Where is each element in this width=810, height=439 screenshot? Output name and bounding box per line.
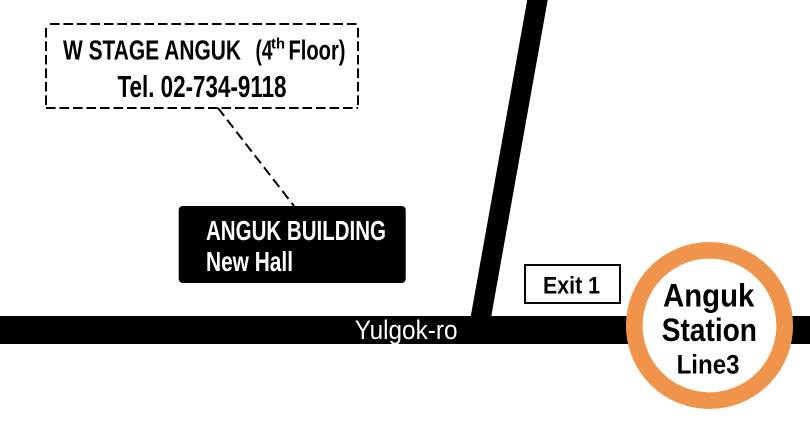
svg-text:Yulgok-ro: Yulgok-ro xyxy=(355,315,458,345)
svg-text:Floor): Floor) xyxy=(289,35,346,66)
svg-text:New Hall: New Hall xyxy=(206,246,293,277)
svg-text:Anguk: Anguk xyxy=(663,278,755,314)
svg-text:Tel. 02-734-9118: Tel. 02-734-9118 xyxy=(118,69,287,104)
svg-text:W STAGE ANGUK: W STAGE ANGUK xyxy=(63,35,241,66)
svg-text:th: th xyxy=(271,37,285,53)
svg-text:Exit 1: Exit 1 xyxy=(543,273,600,300)
svg-text:Station: Station xyxy=(662,312,757,348)
svg-text:ANGUK BUILDING: ANGUK BUILDING xyxy=(206,215,386,246)
svg-text:Line3: Line3 xyxy=(677,349,740,379)
